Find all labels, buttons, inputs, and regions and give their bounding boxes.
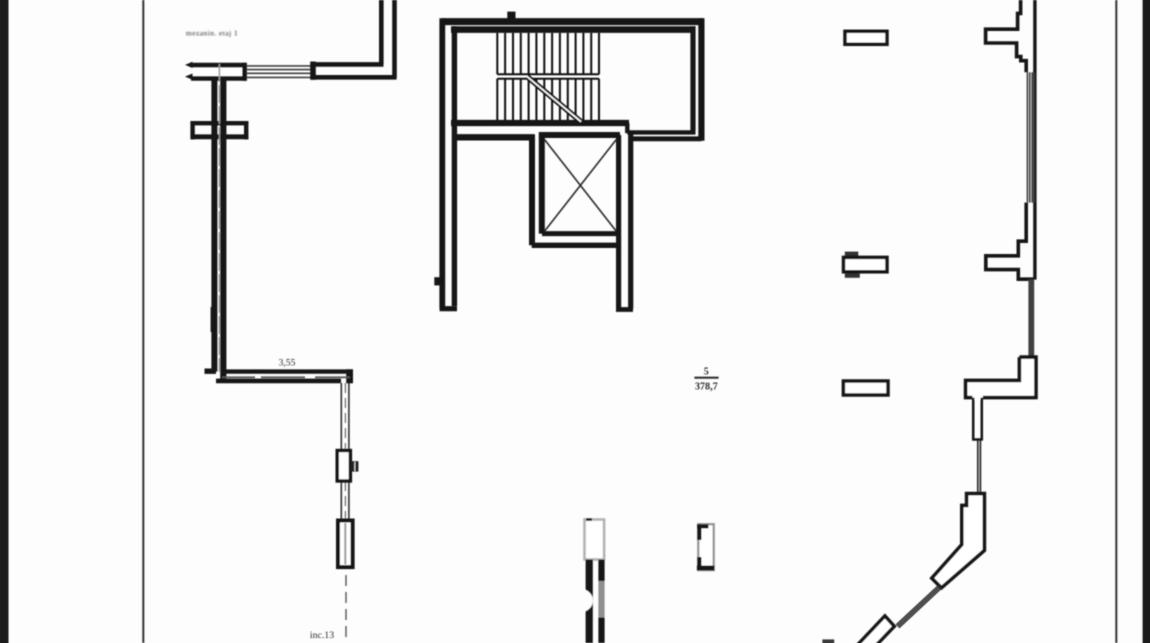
svg-text:5: 5 <box>704 366 709 377</box>
svg-text:378,7: 378,7 <box>695 382 718 393</box>
svg-text:3,55: 3,55 <box>279 358 296 369</box>
svg-text:mezanin. etaj 1: mezanin. etaj 1 <box>186 29 238 38</box>
svg-text:inc.13: inc.13 <box>310 630 334 641</box>
